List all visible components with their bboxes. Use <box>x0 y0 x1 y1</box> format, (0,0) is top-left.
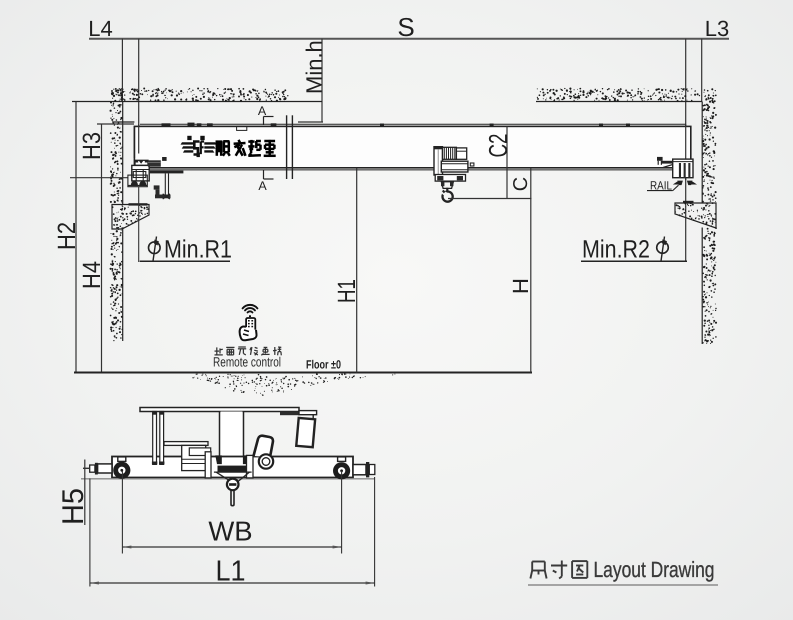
svg-text:H2: H2 <box>53 222 81 250</box>
svg-text:WB: WB <box>208 516 252 547</box>
svg-text:S: S <box>397 12 414 42</box>
svg-text:L1: L1 <box>216 556 246 588</box>
svg-text:Layout Drawing: Layout Drawing <box>594 557 715 582</box>
svg-text:Min.R1: Min.R1 <box>164 236 232 264</box>
svg-text:Min.R2: Min.R2 <box>582 236 650 264</box>
svg-text:C: C <box>510 177 532 191</box>
svg-text:H3: H3 <box>78 132 106 160</box>
svg-text:H4: H4 <box>78 261 106 289</box>
svg-text:L3: L3 <box>705 16 729 41</box>
svg-text:Min.h: Min.h <box>302 40 327 94</box>
svg-text:H5: H5 <box>57 488 90 525</box>
svg-text:L4: L4 <box>88 16 112 41</box>
svg-text:Remote control: Remote control <box>213 355 281 370</box>
svg-text:A: A <box>258 179 267 193</box>
svg-text:H1: H1 <box>333 279 361 303</box>
svg-text:H: H <box>508 278 533 294</box>
svg-text:C2: C2 <box>483 134 513 158</box>
svg-text:Floor ±0: Floor ±0 <box>306 358 341 372</box>
